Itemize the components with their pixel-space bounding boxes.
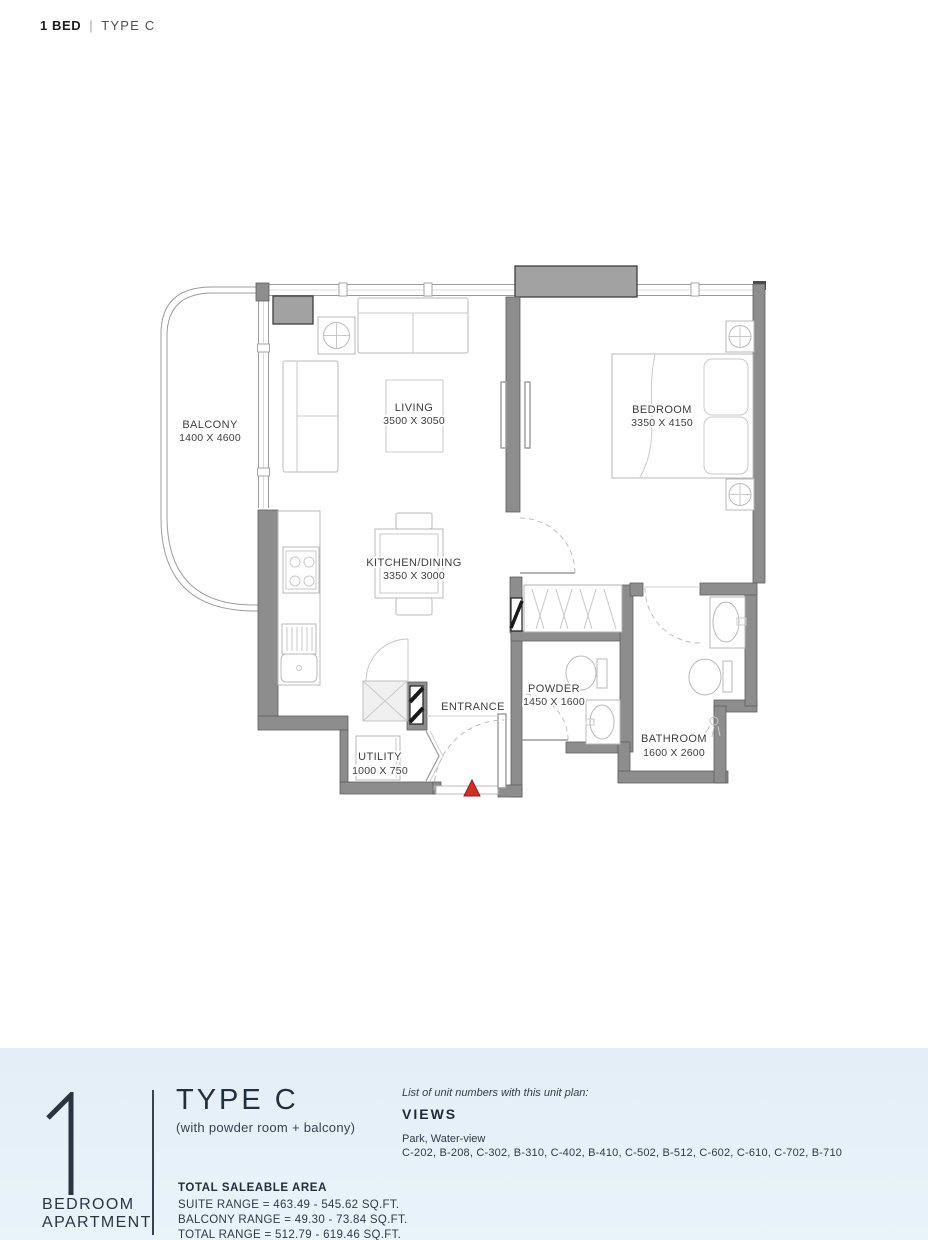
- living-window: [265, 283, 515, 296]
- nightstand-top: [726, 321, 754, 352]
- wall-stub: [256, 283, 269, 301]
- balcony-label: BALCONY: [182, 419, 238, 431]
- unit-count-numeral: [40, 1092, 100, 1198]
- side-table-lamp: [318, 317, 355, 354]
- info-panel: BEDROOM APARTMENT TYPE C (with powder ro…: [0, 1048, 928, 1240]
- pantry-door: [366, 639, 408, 681]
- units-intro: List of unit numbers with this unit plan…: [402, 1087, 588, 1099]
- balcony-range: BALCONY RANGE = 49.30 - 73.84 SQ.FT.: [178, 1213, 408, 1228]
- utility-label: UTILITY: [358, 751, 402, 763]
- area-heading: TOTAL SALEABLE AREA: [178, 1182, 327, 1194]
- bedroom-label: BEDROOM: [632, 404, 692, 416]
- bathroom-toilet: [689, 659, 732, 695]
- views-heading: VIEWS: [402, 1106, 457, 1122]
- vertical-divider: [152, 1090, 154, 1235]
- kitchen-sink: [281, 624, 317, 682]
- entrance-label: ENTRANCE: [441, 701, 505, 713]
- living-label: LIVING: [395, 402, 433, 414]
- bathroom-sink: [710, 597, 746, 648]
- powder-label: POWDER: [528, 683, 580, 695]
- stove: [283, 547, 319, 593]
- wardrobe-hatch: [524, 585, 622, 632]
- balcony-window: [256, 283, 270, 508]
- type-subtitle: (with powder room + balcony): [176, 1120, 355, 1135]
- living-dims: 3500 X 3050: [383, 415, 445, 427]
- total-range: TOTAL RANGE = 512.79 - 619.46 SQ.FT.: [178, 1228, 408, 1240]
- bed: [612, 354, 753, 478]
- nightstand-bottom: [726, 479, 754, 510]
- column-top: [515, 266, 637, 297]
- suite-range: SUITE RANGE = 463.49 - 545.62 SQ.FT.: [178, 1198, 408, 1213]
- bedroom-dims: 3350 X 4150: [631, 417, 693, 429]
- floorplan-page: 1 BED | TYPE C: [0, 0, 928, 1240]
- sofa-left: [283, 361, 338, 472]
- bathroom-door: [643, 587, 700, 643]
- washer: [363, 681, 407, 721]
- balcony-dims: 1400 X 4600: [179, 432, 241, 444]
- bedroom-door: [520, 518, 575, 573]
- bathroom-dims: 1600 X 2600: [643, 747, 705, 759]
- unit-numbers: C-202, B-208, C-302, B-310, C-402, B-410…: [402, 1147, 842, 1159]
- powder-dims: 1450 X 1600: [523, 696, 585, 708]
- area-ranges: SUITE RANGE = 463.49 - 545.62 SQ.FT. BAL…: [178, 1198, 408, 1240]
- utility-dims: 1000 X 750: [352, 765, 408, 777]
- powder-sink: [586, 700, 620, 744]
- unit-caption-line2: APARTMENT: [42, 1214, 152, 1232]
- views-value: Park, Water-view: [402, 1133, 485, 1145]
- column-living: [273, 296, 313, 324]
- bedroom-window: [637, 281, 766, 296]
- balcony-outline: [161, 287, 259, 611]
- unit-caption-line1: BEDROOM: [42, 1196, 152, 1214]
- floorplan-drawing: BALCONY 1400 X 4600 LIVING 3500 X 3050 B…: [0, 0, 928, 1050]
- sofa-top: [358, 298, 468, 353]
- kitchen-dims: 3350 X 3000: [383, 570, 445, 582]
- bathroom-label: BATHROOM: [641, 733, 707, 745]
- utility-bifold-door: [426, 731, 443, 781]
- unit-caption: BEDROOM APARTMENT: [42, 1196, 152, 1232]
- kitchen-label: KITCHEN/DINING: [366, 557, 461, 569]
- type-title: TYPE C: [176, 1084, 299, 1117]
- entrance-door: [434, 714, 506, 794]
